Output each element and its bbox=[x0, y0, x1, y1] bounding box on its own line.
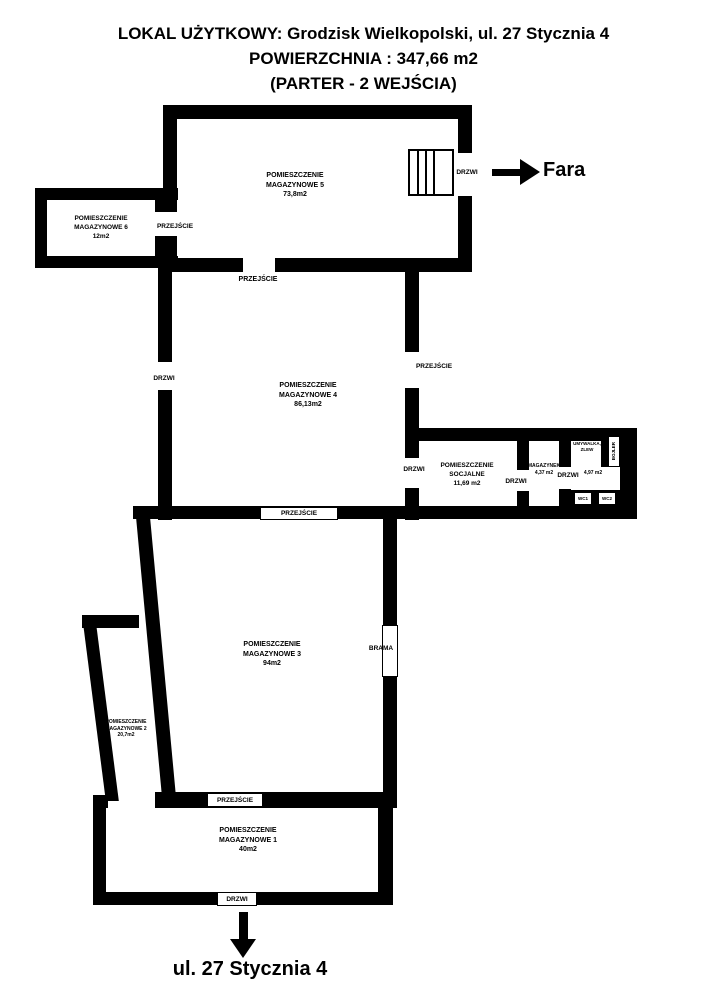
room-name-line: POMIESZCZENIE bbox=[228, 381, 388, 391]
plan-subtitle-floor: (PARTER - 2 WEJŚCIA) bbox=[20, 74, 707, 94]
street-label: ul. 27 Stycznia 4 bbox=[150, 958, 350, 981]
passage-label: PRZEJŚCIE bbox=[409, 362, 459, 371]
room-label-magazynowe-3: POMIESZCZENIE MAGAZYNOWE 3 94m2 bbox=[192, 640, 352, 669]
door-label-fara: DRZWI bbox=[450, 168, 484, 177]
fixture-label-sink: UMYWALKA, ZLEW bbox=[572, 441, 602, 453]
wall bbox=[559, 489, 571, 506]
wall bbox=[93, 795, 106, 905]
room-name-line: POMIESZCZENIE bbox=[417, 461, 517, 470]
wall bbox=[405, 388, 419, 458]
wc1-box: WC1 bbox=[575, 493, 591, 504]
door-label-box: DRZWI bbox=[217, 892, 257, 906]
room-name-line: POMIESZCZENIE bbox=[47, 214, 155, 223]
room-label-magazynowe-5: POMIESZCZENIE MAGAZYNOWE 5 73,8m2 bbox=[215, 171, 375, 200]
passage-label-box: PRZEJŚCIE bbox=[260, 507, 338, 520]
room-name-line: MAGAZYNOWE 3 bbox=[192, 650, 352, 660]
wall bbox=[135, 506, 176, 798]
fixture-line: ZLEW bbox=[572, 447, 602, 453]
arrow-right-head-icon bbox=[520, 159, 540, 185]
stairs-icon bbox=[408, 149, 454, 196]
room-label-magazynowe-1: POMIESZCZENIE MAGAZYNOWE 1 40m2 bbox=[168, 826, 328, 855]
passage-label-box: PRZEJŚCIE bbox=[207, 793, 263, 807]
wall bbox=[517, 491, 529, 506]
door-label: DRZWI bbox=[144, 374, 184, 383]
room-label-magazynowe-2: POMIESZCZENIE MAGAZYNOWE 2 20,7m2 bbox=[99, 719, 153, 739]
wall bbox=[620, 428, 637, 519]
gate-label: BRAMA bbox=[363, 644, 399, 653]
stair-step-line bbox=[433, 151, 435, 194]
wall bbox=[82, 615, 119, 801]
wall bbox=[158, 258, 172, 362]
door-label: DRZWI bbox=[500, 477, 532, 486]
room-label-magazynowe-4: POMIESZCZENIE MAGAZYNOWE 4 86,13m2 bbox=[228, 381, 388, 410]
boiler-box: BOJLER bbox=[608, 436, 620, 467]
room-area: 73,8m2 bbox=[215, 190, 375, 200]
room-name-line: MAGAZYNOWE 5 bbox=[215, 181, 375, 191]
room-area-lazienka: 4,97 m2 bbox=[580, 470, 606, 477]
room-area: 20,7m2 bbox=[99, 732, 153, 739]
wall bbox=[158, 390, 172, 520]
wall bbox=[155, 792, 397, 808]
stair-step-line bbox=[417, 151, 419, 194]
room-name-line: POMIESZCZENIE bbox=[192, 640, 352, 650]
passage-label: PRZEJŚCIE bbox=[151, 222, 199, 231]
arrow-right-icon bbox=[492, 169, 520, 176]
wall bbox=[405, 258, 419, 352]
room-name-line: POMIESZCZENIE bbox=[168, 826, 328, 836]
room-area: 12m2 bbox=[47, 232, 155, 241]
room-area: 40m2 bbox=[168, 845, 328, 855]
passage-label: PRZEJŚCIE bbox=[228, 275, 288, 285]
room-name-line: MAGAZYNOWE 4 bbox=[228, 391, 388, 401]
room-name-line: POMIESZCZENIE bbox=[99, 719, 153, 726]
wall bbox=[383, 506, 397, 625]
room-label-magazynowe-6: POMIESZCZENIE MAGAZYNOWE 6 12m2 bbox=[47, 214, 155, 241]
room-name-line: MAGAZYNOWE 1 bbox=[168, 836, 328, 846]
plan-title: LOKAL UŻYTKOWY: Grodzisk Wielkopolski, u… bbox=[20, 24, 707, 44]
wall bbox=[163, 105, 472, 119]
room-name-line: MAGAZYNOWE 6 bbox=[47, 223, 155, 232]
room-name-line: MAGAZYNEK bbox=[526, 463, 562, 470]
plan-subtitle-area: POWIERZCHNIA : 347,66 m2 bbox=[20, 49, 707, 69]
arrow-down-icon bbox=[239, 912, 248, 939]
fara-label: Fara bbox=[543, 159, 613, 182]
wall bbox=[378, 795, 393, 905]
stair-step-line bbox=[425, 151, 427, 194]
room-area: 94m2 bbox=[192, 659, 352, 669]
wall bbox=[458, 105, 472, 153]
wc2-box: WC2 bbox=[599, 493, 615, 504]
wall bbox=[275, 258, 472, 272]
room-area: 86,13m2 bbox=[228, 400, 388, 410]
boiler-label: BOJLER bbox=[611, 442, 617, 460]
wall bbox=[601, 436, 608, 467]
floor-plan: LOKAL UŻYTKOWY: Grodzisk Wielkopolski, u… bbox=[0, 0, 707, 1000]
wall bbox=[383, 677, 397, 801]
arrow-down-head-icon bbox=[230, 939, 256, 958]
room-name-line: POMIESZCZENIE bbox=[215, 171, 375, 181]
wall bbox=[155, 188, 177, 212]
